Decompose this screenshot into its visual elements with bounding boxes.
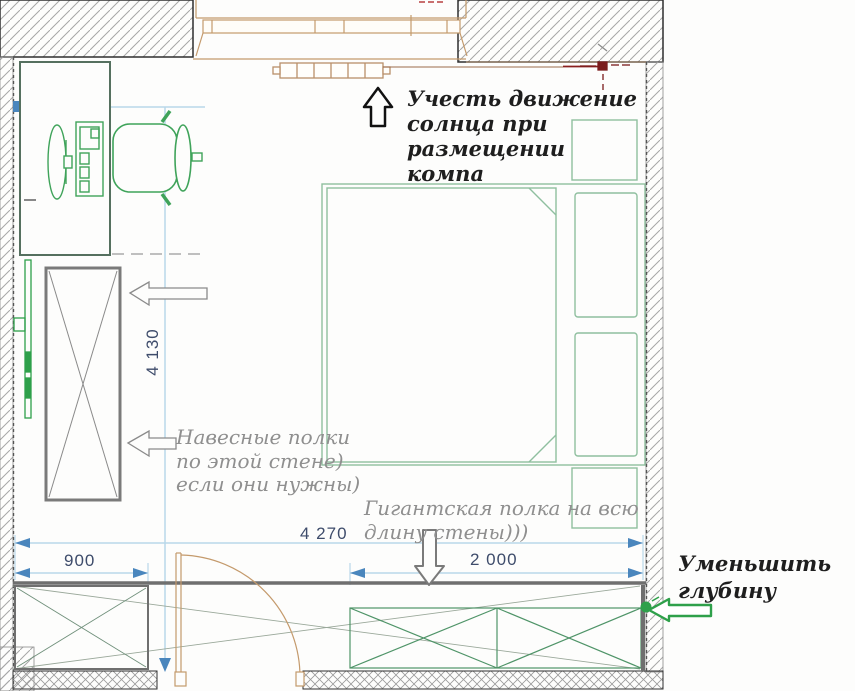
annotation-line: если они нужны) <box>176 473 360 497</box>
annotation-reduce-depth-note: Уменьшить глубину <box>678 550 831 604</box>
annotation-line: компа <box>407 161 637 186</box>
up-arrow-icon <box>364 88 392 126</box>
office-chair-icon <box>113 111 202 205</box>
closet-bottom-left <box>15 586 148 669</box>
annotation-line: по этой стене) <box>176 450 360 474</box>
annotation-line: глубину <box>678 577 831 604</box>
wall-bottom-right <box>303 671 663 689</box>
pillow-bottom <box>575 333 637 456</box>
annotation-line: Гигантская полка на всю <box>364 496 639 520</box>
left-arrow-icon-top <box>130 282 207 305</box>
shelf-bottom-right <box>350 608 641 668</box>
pillow-top <box>575 193 637 317</box>
wall-tv-icon <box>14 260 31 418</box>
left-arrow-icon-bottom <box>128 431 176 456</box>
door <box>175 553 304 686</box>
annotation-giant-shelf-note: Гигантская полка на всю длину стены))) <box>364 496 639 544</box>
window-red-marks <box>419 1 443 3</box>
wardrobe <box>46 268 120 500</box>
radiator <box>273 63 390 78</box>
wall-bottom-left <box>13 671 157 689</box>
dimension-total-width-label: 4 270 <box>300 524 348 544</box>
annotation-line: Учесть движение <box>407 86 637 111</box>
door-jamb-left <box>175 672 186 686</box>
annotation-sun-note: Учесть движение солнца при размещении ко… <box>407 86 637 186</box>
giant-shelf <box>13 583 646 669</box>
annotation-line: размещении <box>407 136 637 161</box>
wall-left <box>0 57 13 691</box>
door-jamb-right <box>296 672 304 686</box>
window <box>193 0 467 59</box>
annotation-line: Уменьшить <box>678 550 831 577</box>
wall-top-right <box>458 0 663 62</box>
dimension-marker-down-triangle <box>159 658 171 672</box>
dimension-room-height-label: 4 130 <box>143 312 163 392</box>
wall-top-left <box>0 0 193 57</box>
annotation-line: солнца при <box>407 111 637 136</box>
annotation-shelves-note: Навесные полки по этой стене) если они н… <box>176 426 360 497</box>
floor-plan-screenshot: Учесть движение солнца при размещении ко… <box>0 0 855 691</box>
bed <box>322 184 645 465</box>
dimension-left-segment-label: 900 <box>64 551 95 571</box>
annotation-line: Навесные полки <box>176 426 360 450</box>
dimension-right-segment-label: 2 000 <box>470 550 518 570</box>
annotation-line: длину стены))) <box>364 520 639 544</box>
bed-blanket <box>327 188 556 462</box>
wall-right <box>646 62 663 672</box>
